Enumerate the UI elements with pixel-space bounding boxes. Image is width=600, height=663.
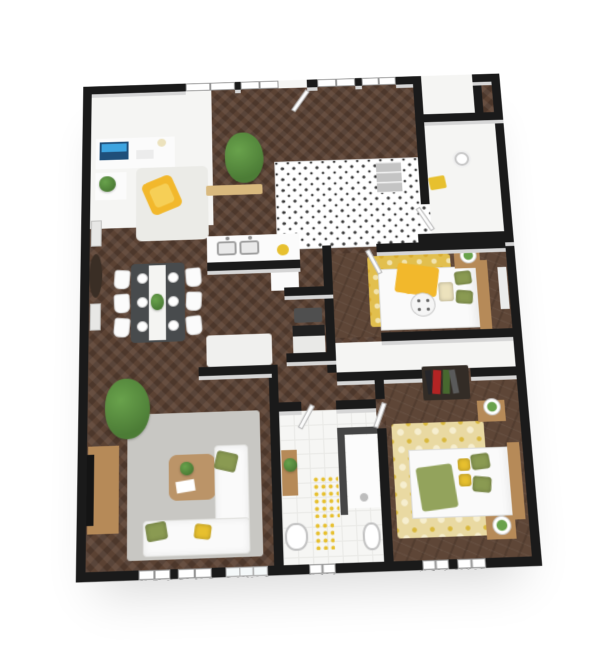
- dining-chair: [185, 315, 203, 336]
- cooktop: [292, 325, 325, 337]
- magazines: [175, 479, 195, 494]
- toilet: [362, 522, 381, 550]
- plant-living: [105, 378, 150, 440]
- window: [241, 81, 279, 90]
- corridor-wall: [470, 366, 516, 376]
- bedroom1-wall-bottom: [381, 328, 513, 341]
- floor-plan: [76, 74, 542, 583]
- floor-bathroom: [279, 408, 384, 565]
- bedroom2-wall-left: [374, 371, 385, 399]
- island-cabinet: [206, 333, 272, 367]
- shower-drain: [360, 493, 369, 502]
- centerpiece: [151, 294, 164, 311]
- entry-door-gap: [278, 80, 307, 89]
- hall-stub-wall: [199, 365, 272, 376]
- bed2: [408, 446, 517, 518]
- coffee-table: [169, 454, 216, 501]
- wall-top: [307, 79, 318, 87]
- facade-window: [178, 578, 214, 580]
- clothes: [432, 370, 441, 394]
- window: [186, 82, 235, 91]
- floor-bedroom2: [384, 375, 532, 561]
- bed1-tray: [410, 292, 436, 317]
- nightstand: [486, 515, 517, 539]
- bed2-pillow-green: [472, 476, 491, 493]
- facade-window: [139, 579, 173, 581]
- bath-shelf: [281, 450, 298, 496]
- sofa-arm-right: [214, 444, 250, 551]
- bucket: [428, 175, 447, 190]
- bedroom2-rug: [391, 421, 492, 539]
- coffee-plant: [180, 462, 194, 476]
- floor-porch: [416, 74, 479, 114]
- planter: [492, 515, 512, 535]
- laptop-screen: [102, 143, 127, 152]
- bed1-pillow-green: [454, 270, 473, 285]
- bathroom-wall-top: [336, 399, 376, 409]
- wall-left: [76, 87, 92, 583]
- sofa-pillow-olive: [213, 450, 238, 473]
- tv-console: [87, 446, 119, 535]
- living-rug: [127, 410, 263, 561]
- bed1-pillow-green: [456, 290, 473, 305]
- wall-bottom: [449, 559, 458, 569]
- floor-corridor: [335, 337, 515, 373]
- sofa-pillow-olive: [145, 521, 169, 543]
- bed2-pillow-green: [470, 452, 491, 470]
- bed2-pillow-yellow: [458, 474, 471, 487]
- window: [317, 78, 355, 87]
- bathroom-wall-left: [268, 365, 283, 566]
- wall-art: [91, 220, 102, 246]
- wardrobe: [421, 365, 470, 400]
- facade-window: [454, 568, 485, 570]
- dining-chair: [185, 267, 202, 287]
- door-leaf-bathroom: [298, 404, 315, 430]
- facade-window: [420, 569, 449, 571]
- tv: [86, 455, 94, 526]
- range-hood: [294, 307, 323, 322]
- corridor-wall: [337, 370, 423, 382]
- dining-chair: [185, 291, 202, 310]
- plate: [137, 321, 148, 332]
- sofa-bottom: [143, 517, 251, 557]
- bath-mat: [312, 475, 340, 518]
- keyboard: [136, 150, 153, 160]
- nightstand: [477, 400, 506, 422]
- dining-chair: [113, 318, 131, 338]
- bathroom-wall-top: [279, 402, 302, 412]
- plate: [168, 320, 179, 331]
- shelf-unit: [376, 161, 403, 193]
- bath-plant: [284, 458, 298, 472]
- planter: [483, 398, 502, 416]
- bath-mat: [314, 522, 335, 550]
- window: [361, 77, 395, 86]
- sofa-pillow-yellow: [193, 523, 212, 540]
- shower-wall: [337, 426, 377, 435]
- shower-wall: [337, 428, 348, 515]
- clothes: [449, 369, 460, 394]
- door-leaf-bedroom2: [373, 402, 386, 428]
- floor-plan-stage: [0, 0, 600, 663]
- wall-bottom: [212, 567, 226, 577]
- bed1-pillow-cream: [438, 282, 454, 302]
- facade-window: [226, 576, 269, 578]
- bed2-pillow-yellow: [457, 458, 470, 471]
- alcove-wall: [284, 286, 333, 296]
- bench: [206, 184, 263, 196]
- kitchen-sink: [217, 241, 237, 256]
- bath-sink: [285, 523, 309, 552]
- range: [292, 325, 325, 353]
- dining-chair: [113, 270, 130, 290]
- floor-plan-3d: [76, 74, 542, 583]
- wall-bottom: [170, 569, 177, 579]
- bed2-headboard: [507, 442, 526, 520]
- clothes: [443, 370, 450, 394]
- bedroom2-wall-left: [377, 428, 394, 562]
- dining-chair: [114, 293, 131, 314]
- kitchen-sink: [239, 240, 259, 255]
- alcove-wall: [286, 352, 336, 363]
- bed1-throw: [394, 262, 439, 297]
- clothes: [425, 370, 435, 394]
- wall-right: [491, 74, 543, 567]
- shower-tray: [346, 435, 381, 509]
- wall-art: [90, 303, 101, 330]
- bed2-blanket: [415, 463, 458, 512]
